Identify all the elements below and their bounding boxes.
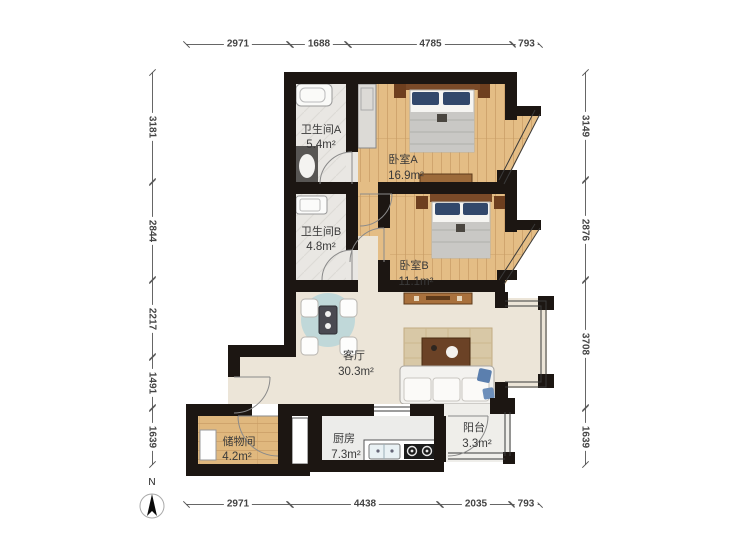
room-label-kitchen-area: 7.3m² (331, 449, 361, 461)
dimension-value: 1639 (147, 422, 158, 450)
compass: N (136, 478, 168, 526)
kitchen-counter (364, 440, 438, 462)
room-label-kitchen-name: 厨房 (333, 432, 355, 445)
room-label-balcony-name: 阳台 (463, 420, 485, 434)
sofa (400, 366, 495, 404)
duct-shaft (292, 418, 308, 464)
sink-b (296, 196, 327, 214)
dimension-value: 2844 (147, 217, 158, 245)
nightstand (394, 84, 406, 98)
dimension-value: 3181 (147, 113, 158, 141)
dimension-value: 4785 (416, 39, 444, 50)
room-label-storage-area: 4.2m² (222, 451, 252, 463)
dining-set (301, 293, 357, 355)
dimension-top-segment-3: 4785 (348, 44, 513, 45)
dimension-value: 3708 (580, 330, 591, 358)
wardrobe-bedroom-a (358, 84, 376, 148)
dimension-left-segment-2: 2844 (152, 182, 153, 280)
dimension-value: 1639 (580, 422, 591, 450)
dimension-top-segment-2: 1688 (290, 44, 348, 45)
dimension-value: 2971 (224, 39, 252, 50)
room-label-bathroom-a-name: 卫生间A (301, 122, 342, 136)
compass-icon (136, 488, 168, 522)
room-label-bedroom-b-name: 卧室B (399, 258, 428, 272)
room-label-bedroom-a-area: 16.9m² (388, 170, 424, 182)
room-label-storage-name: 储物间 (223, 434, 256, 448)
dimension-right-segment-2: 2876 (585, 180, 586, 280)
dimension-value: 4438 (351, 499, 379, 510)
dimension-bottom-segment-3: 2035 (440, 504, 512, 505)
nightstand (416, 196, 428, 209)
tv-stand (404, 293, 472, 304)
dimension-value: 2217 (147, 304, 158, 332)
room-label-bedroom-a-name: 卧室A (388, 152, 418, 166)
storage-cabinet (200, 430, 216, 460)
dimension-right-segment-4: 1639 (585, 408, 586, 465)
dimension-left-segment-3: 2217 (152, 280, 153, 357)
dimension-left-segment-1: 3181 (152, 72, 153, 182)
dimension-right-segment-3: 3708 (585, 280, 586, 408)
room-label-balcony-area: 3.3m² (462, 438, 492, 450)
dimension-bottom-segment-2: 4438 (290, 504, 440, 505)
dimension-top-segment-4: 793 (513, 44, 540, 45)
stove (404, 444, 435, 459)
coffee-table (422, 338, 470, 366)
room-label-bathroom-b-area: 4.8m² (306, 241, 336, 253)
compass-north-label: N (136, 478, 168, 488)
room-label-bathroom-a-area: 5.4m² (306, 139, 336, 151)
dimension-value: 2971 (224, 499, 252, 510)
dimension-left-segment-4: 1491 (152, 357, 153, 408)
dimension-right-segment-1: 3149 (585, 72, 586, 180)
dimension-value: 3149 (580, 112, 591, 140)
toilet-a (296, 146, 318, 184)
dimension-bottom-segment-1: 2971 (186, 504, 290, 505)
room-label-living-area: 30.3m² (338, 366, 374, 378)
dimension-bottom-segment-4: 793 (512, 504, 540, 505)
dimension-value: 1688 (305, 39, 333, 50)
nightstand (494, 196, 506, 209)
dimension-left-segment-5: 1639 (152, 408, 153, 465)
dimension-value: 1491 (147, 368, 158, 396)
room-label-bedroom-b-area: 11.1m² (399, 276, 434, 288)
kitchen-pass-window (374, 404, 410, 416)
dimension-value: 2876 (580, 216, 591, 244)
bathtub-a (296, 84, 332, 106)
dimension-value: 793 (515, 39, 538, 50)
dimension-value: 793 (515, 499, 538, 510)
room-label-living-name: 客厅 (343, 348, 365, 362)
dimension-value: 2035 (462, 499, 490, 510)
floorplan-canvas: 2971 1688 4785 793 2971 4438 2035 793 31… (0, 0, 729, 547)
dimension-top-segment-1: 2971 (186, 44, 290, 45)
room-label-bathroom-b-name: 卫生间B (301, 224, 341, 238)
floorplan-svg: 卫生间A 5.4m² 卧室A 16.9m² 卫生间B 4.8m² 卧室B 11.… (180, 58, 562, 482)
